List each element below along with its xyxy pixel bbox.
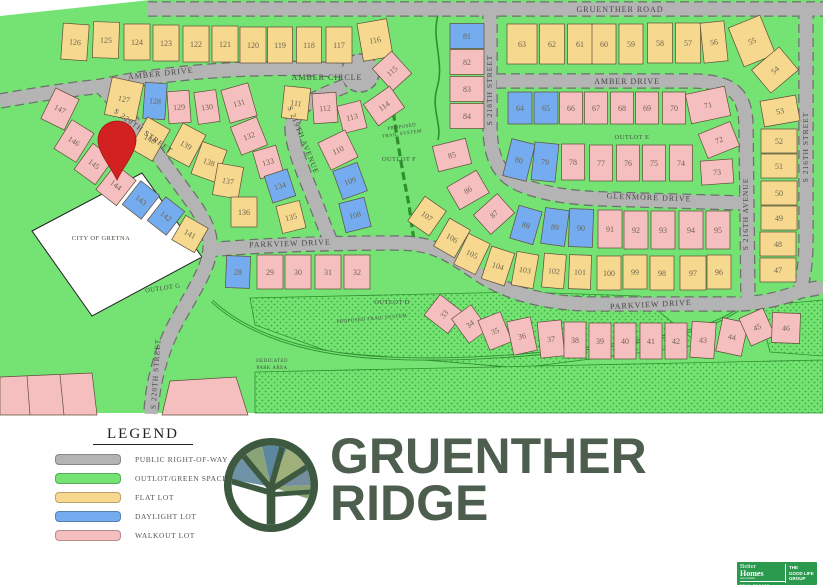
lot-121: 121: [212, 26, 238, 62]
lot-number: 84: [463, 112, 471, 121]
bhg-group: GROUP: [789, 576, 814, 582]
lot-81: 81: [450, 24, 484, 49]
lot-number: 29: [266, 268, 274, 277]
lot-118: 118: [297, 27, 322, 63]
lot-60: 60: [592, 24, 616, 64]
lot-number: 124: [131, 38, 143, 47]
lot-99: 99: [623, 255, 647, 289]
lot-number: 119: [274, 41, 286, 50]
lot-number: 48: [774, 240, 782, 249]
lot-number: 117: [333, 41, 345, 50]
lot-number: 41: [647, 337, 655, 346]
lot-48: 48: [760, 232, 796, 256]
lot-70: 70: [663, 92, 686, 124]
lot-number: 121: [219, 40, 231, 49]
lot-number: 77: [597, 159, 605, 168]
lot-number: 74: [677, 159, 685, 168]
lot-124: 124: [124, 24, 150, 60]
lot-68: 68: [611, 92, 634, 124]
lot-number: 76: [624, 159, 632, 168]
lot-number: 82: [463, 58, 471, 67]
lot-50: 50: [761, 181, 797, 205]
annotation-label: PARK AREA: [256, 366, 287, 371]
lot-46: 46: [771, 313, 800, 344]
lot-number: 69: [643, 104, 651, 113]
lot-125: 125: [92, 22, 119, 59]
lot-130: 130: [194, 90, 220, 125]
lot-89: 89: [541, 208, 570, 247]
lot-number: 58: [656, 39, 664, 48]
lot-94: 94: [679, 211, 703, 249]
lot-92: 92: [624, 211, 648, 249]
street-label: GRUENTHER ROAD: [576, 5, 663, 14]
lot-136: 136: [231, 197, 257, 227]
lot-76: 76: [617, 145, 640, 181]
lot-98: 98: [650, 256, 674, 290]
lot-67: 67: [585, 92, 608, 124]
lot-number: 57: [684, 39, 692, 48]
lot-number: 50: [775, 189, 783, 198]
lot-number: 136: [238, 208, 250, 217]
street-label: AMBER CIRCLE: [292, 73, 363, 82]
lot-number: 90: [577, 224, 585, 233]
lot-number: 61: [576, 40, 584, 49]
lot-69: 69: [636, 92, 659, 124]
lot-number: 129: [173, 102, 186, 112]
legend-title: LEGEND: [93, 426, 193, 445]
lot-129: 129: [167, 90, 191, 123]
lot-90: 90: [568, 209, 593, 248]
lot-32: 32: [344, 255, 370, 289]
lot-number: 32: [353, 268, 361, 277]
lot-number: 47: [774, 266, 782, 275]
lot-number: 78: [569, 158, 577, 167]
lot-number: 81: [463, 32, 471, 41]
lot-number: 60: [600, 40, 608, 49]
plat-map-page: 1261251241231221211201191181171161151141…: [0, 0, 823, 588]
lot-number: 79: [541, 157, 550, 167]
lot-79: 79: [531, 142, 559, 182]
legend-swatch: [55, 473, 121, 484]
annotation-label: CITY OF GRETNA: [72, 235, 130, 242]
lot-number: 28: [234, 268, 242, 277]
lot-91: 91: [598, 210, 622, 248]
lot-number: 49: [775, 214, 783, 223]
lot-number: 38: [571, 336, 579, 345]
lot-40: 40: [614, 323, 636, 359]
lot-96: 96: [707, 255, 731, 289]
development-title: GRUENTHER RIDGE: [330, 433, 647, 527]
gruenther-ridge-tree-logo-icon: [223, 437, 319, 533]
lot-number: 53: [775, 106, 784, 116]
lot-number: 97: [689, 269, 697, 278]
lot-39: 39: [589, 323, 611, 359]
legend-label: OUTLOT/GREEN SPACE: [135, 474, 227, 483]
lot-97: 97: [680, 256, 706, 290]
lot-41: 41: [640, 323, 662, 359]
legend-label: WALKOUT LOT: [135, 531, 195, 540]
lot-128: 128: [143, 82, 167, 119]
lot-78: 78: [562, 144, 585, 180]
lot-number: 63: [518, 40, 526, 49]
lot-number: 112: [319, 103, 331, 113]
lot-number: 65: [542, 104, 550, 113]
lot-number: 102: [548, 266, 561, 276]
lot-126: 126: [61, 23, 89, 61]
lot-number: 68: [618, 104, 626, 113]
lot-number: 40: [621, 337, 629, 346]
lot-122: 122: [183, 26, 209, 62]
lot-number: 43: [699, 336, 708, 346]
lot-number: 126: [69, 37, 82, 47]
lot-58: 58: [648, 23, 673, 63]
lot-117: 117: [326, 27, 352, 63]
lot-number: 95: [714, 226, 722, 235]
lot-62: 62: [540, 24, 565, 64]
legend-swatch: [55, 454, 121, 465]
lot-75: 75: [643, 145, 666, 181]
lot-30: 30: [285, 255, 311, 289]
annotation-label: OUTLOT D: [374, 299, 409, 306]
street-label: S 216TH STREET: [801, 112, 810, 183]
bhg-real-estate: REAL ESTATE: [740, 581, 785, 587]
lot-number: 59: [627, 40, 635, 49]
legend-label: FLAT LOT: [135, 493, 174, 502]
lot-82: 82: [450, 50, 484, 75]
lot-number: 67: [592, 104, 600, 113]
lot-28: 28: [225, 256, 250, 289]
lot-47: 47: [760, 258, 796, 282]
lot-number: 39: [596, 337, 604, 346]
lot-84: 84: [450, 104, 484, 129]
annotation-label: OUTLOT F: [382, 156, 416, 163]
lot-number: 125: [100, 36, 112, 45]
title-line-1: GRUENTHER: [330, 433, 647, 480]
street-label: S 216TH AVENUE: [741, 178, 750, 251]
lot-number: 73: [713, 168, 722, 178]
annotation-label: DEDICATED: [256, 359, 288, 364]
lot-number: 31: [324, 268, 332, 277]
better-homes-gardens-badge: Better Homes and Gardens REAL ESTATE THE…: [737, 562, 817, 585]
lot-number: 130: [200, 102, 213, 113]
lot-number: 30: [294, 268, 302, 277]
legend-label: DAYLIGHT LOT: [135, 512, 197, 521]
lot-63: 63: [507, 24, 537, 64]
lot-number: 128: [149, 96, 162, 106]
lot-number: 101: [574, 268, 586, 277]
lot-number: 37: [547, 334, 556, 344]
lot-123: 123: [153, 25, 179, 61]
lot-57: 57: [676, 23, 701, 63]
lot-112: 112: [312, 92, 338, 124]
legend-swatch: [55, 530, 121, 541]
lot-number: 92: [632, 226, 640, 235]
subdivision-map: 1261251241231221211201191181171161151141…: [0, 0, 823, 416]
lot-100: 100: [597, 256, 621, 290]
lot-119: 119: [268, 27, 293, 63]
lot-number: 46: [782, 324, 790, 333]
lot-number: 64: [516, 104, 524, 113]
lot-number: 56: [710, 37, 719, 47]
lot-number: 89: [550, 222, 559, 232]
street-label: S 218TH STREET: [485, 55, 494, 126]
lot-number: 100: [603, 269, 615, 278]
lot-number: 123: [160, 39, 172, 48]
lot-38: 38: [564, 322, 586, 358]
lot-66: 66: [560, 92, 583, 124]
lot-59: 59: [619, 24, 643, 64]
lot-number: 94: [687, 226, 695, 235]
lot-43: 43: [690, 321, 716, 359]
lot-74: 74: [670, 145, 693, 181]
lot-number: 120: [247, 41, 259, 50]
lot-number: 66: [567, 104, 575, 113]
lot-51: 51: [761, 154, 797, 178]
legend-swatch: [55, 492, 121, 503]
bhg-left-block: Better Homes and Gardens REAL ESTATE: [737, 562, 785, 585]
lot-number: 70: [670, 104, 678, 113]
lot-37: 37: [537, 320, 565, 358]
lot-number: 98: [658, 269, 666, 278]
title-line-2: RIDGE: [330, 480, 647, 527]
lot-number: 51: [775, 162, 783, 171]
lot-number: 99: [631, 268, 639, 277]
lot-102: 102: [542, 253, 567, 289]
lot-number: 91: [606, 225, 614, 234]
lot-49: 49: [761, 206, 797, 230]
lot-number: 93: [659, 226, 667, 235]
lot-73: 73: [700, 159, 734, 185]
lot-120: 120: [240, 27, 266, 63]
lot-101: 101: [568, 255, 591, 290]
lot-number: 52: [775, 137, 783, 146]
lot-93: 93: [651, 211, 675, 249]
annotation-label: OUTLOT E: [615, 134, 650, 141]
lot-95: 95: [706, 211, 730, 249]
lot-number: 96: [715, 268, 723, 277]
lot-number: 122: [190, 40, 202, 49]
bhg-right-block: THE GOOD LIFE GROUP: [785, 564, 814, 583]
lot-64: 64: [508, 92, 532, 124]
lot-number: 75: [650, 159, 658, 168]
lot-42: 42: [665, 323, 687, 359]
lot-83: 83: [450, 77, 484, 102]
legend-label: PUBLIC RIGHT-OF-WAY: [135, 455, 228, 464]
lot-number: 118: [303, 41, 315, 50]
lot-56: 56: [700, 21, 728, 63]
lot-65: 65: [534, 92, 558, 124]
lot-number: 83: [463, 85, 471, 94]
lot-number: 42: [672, 337, 680, 346]
lot-61: 61: [568, 24, 593, 64]
legend-swatch: [55, 511, 121, 522]
lot-137: 137: [212, 163, 243, 199]
lot-52: 52: [761, 129, 797, 153]
lot-77: 77: [590, 145, 613, 181]
street-label: AMBER DRIVE: [594, 77, 660, 86]
lot-number: 62: [548, 40, 556, 49]
lot-29: 29: [257, 255, 283, 289]
lot-31: 31: [315, 255, 341, 289]
